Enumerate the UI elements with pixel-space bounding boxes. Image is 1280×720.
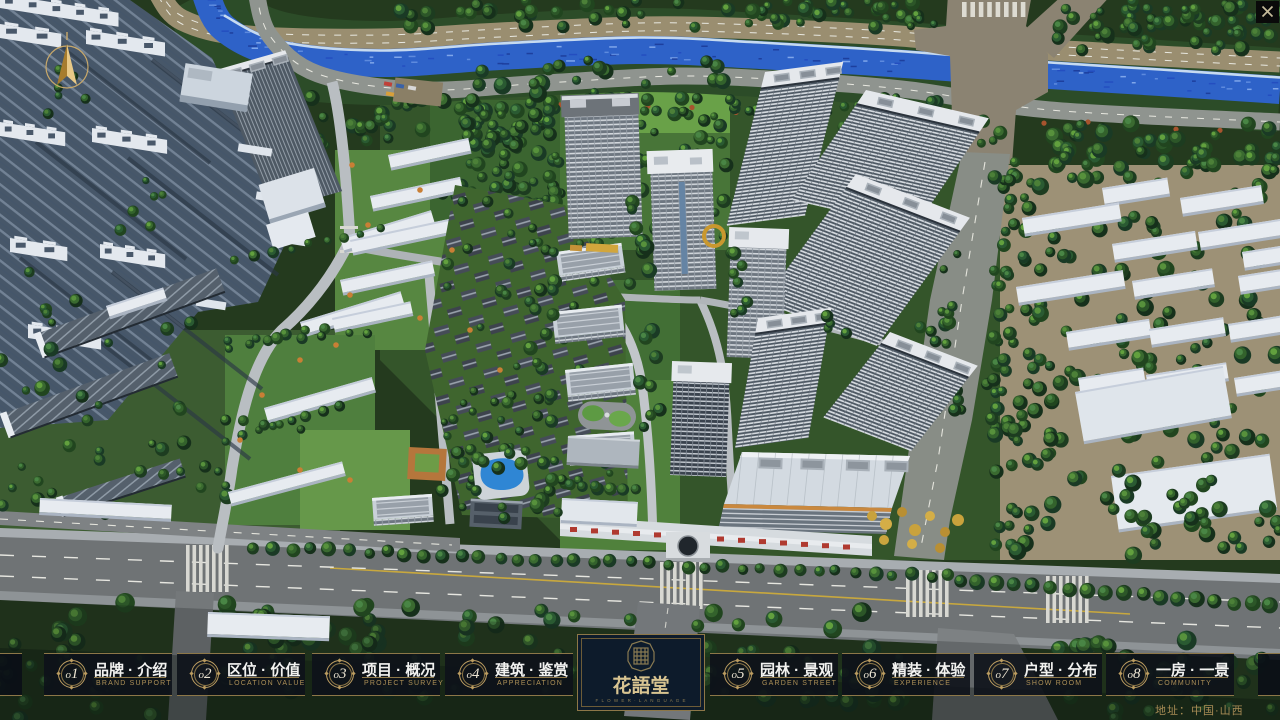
svg-text:花語堂: 花語堂 xyxy=(612,674,669,697)
svg-text:F L O W E R · L A N G U A G E: F L O W E R · L A N G U A G E xyxy=(596,698,687,703)
